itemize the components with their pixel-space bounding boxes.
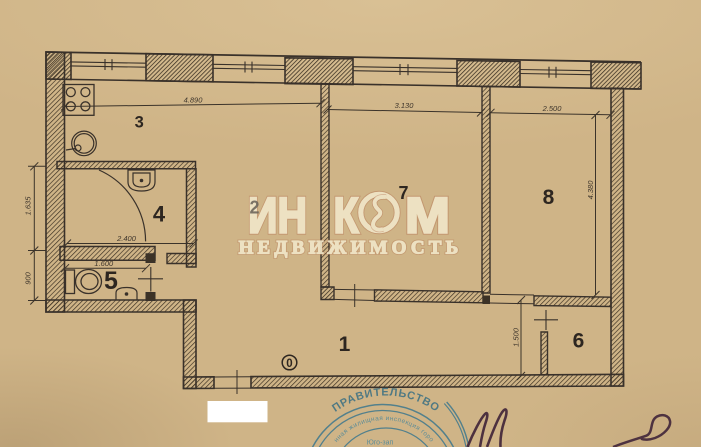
svg-text:8: 8	[543, 186, 555, 209]
svg-text:Юго-зап: Юго-зап	[367, 440, 394, 447]
svg-text:6: 6	[573, 330, 585, 353]
svg-text:4.890: 4.890	[184, 96, 204, 105]
svg-text:М: М	[405, 188, 450, 244]
svg-text:900: 900	[24, 271, 33, 284]
svg-text:5: 5	[104, 267, 118, 295]
svg-text:1: 1	[339, 333, 351, 356]
svg-text:К: К	[334, 188, 359, 244]
svg-text:0: 0	[286, 358, 292, 370]
svg-text:2.500: 2.500	[542, 104, 563, 113]
svg-text:4: 4	[153, 201, 166, 226]
svg-text:1.635: 1.635	[24, 196, 33, 216]
svg-text:3: 3	[135, 114, 144, 132]
svg-text:3.130: 3.130	[395, 101, 415, 110]
svg-text:2: 2	[250, 198, 260, 218]
svg-text:4.380: 4.380	[586, 180, 595, 200]
svg-text:НЕДВИЖИМОСТЬ: НЕДВИЖИМОСТЬ	[239, 238, 463, 259]
svg-text:2.400: 2.400	[116, 234, 137, 243]
svg-text:1.500: 1.500	[512, 327, 521, 347]
